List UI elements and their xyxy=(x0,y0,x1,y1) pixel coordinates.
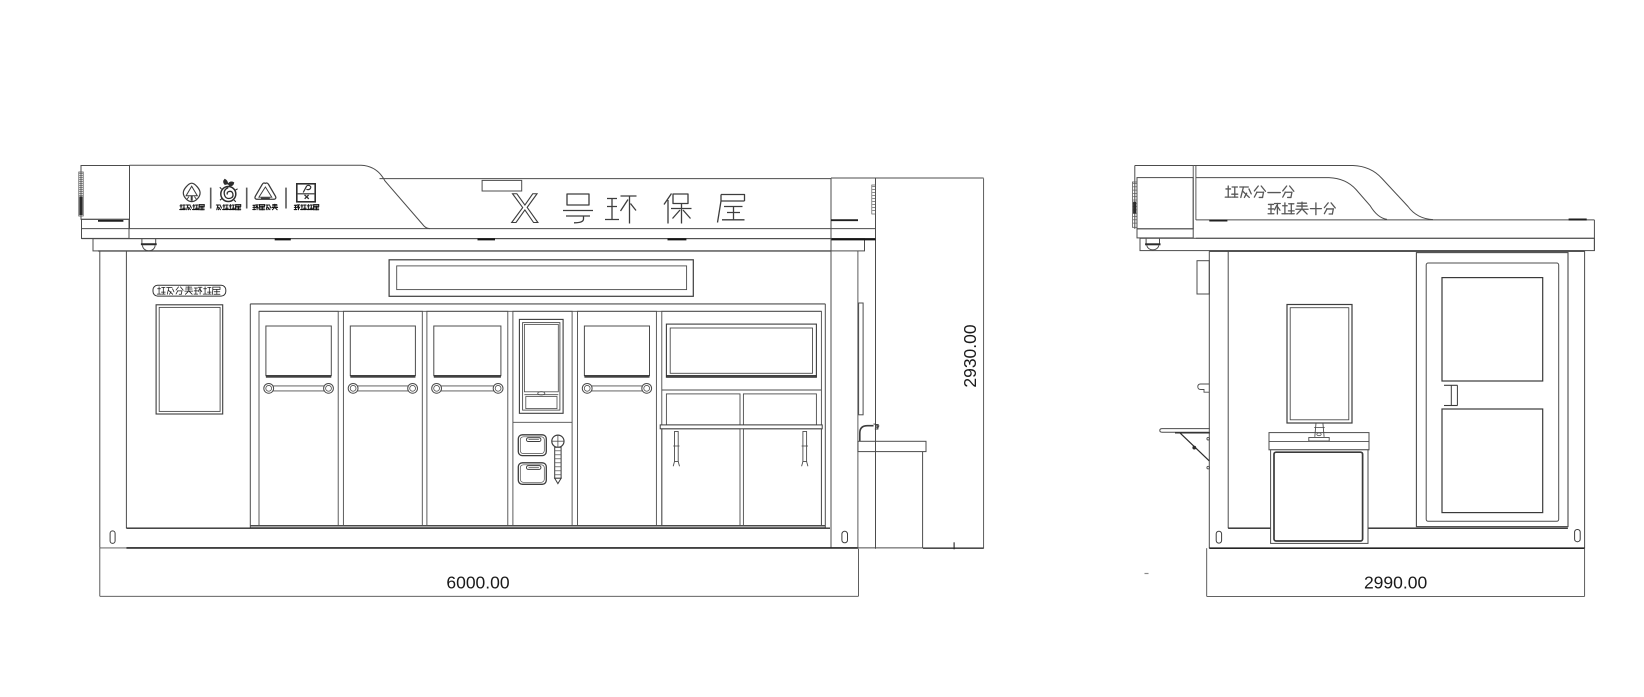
svg-text:6000.00: 6000.00 xyxy=(446,573,510,593)
svg-text:2930.00: 2930.00 xyxy=(960,324,980,388)
svg-text:2990.00: 2990.00 xyxy=(1364,573,1428,593)
svg-text:X: X xyxy=(511,185,539,232)
